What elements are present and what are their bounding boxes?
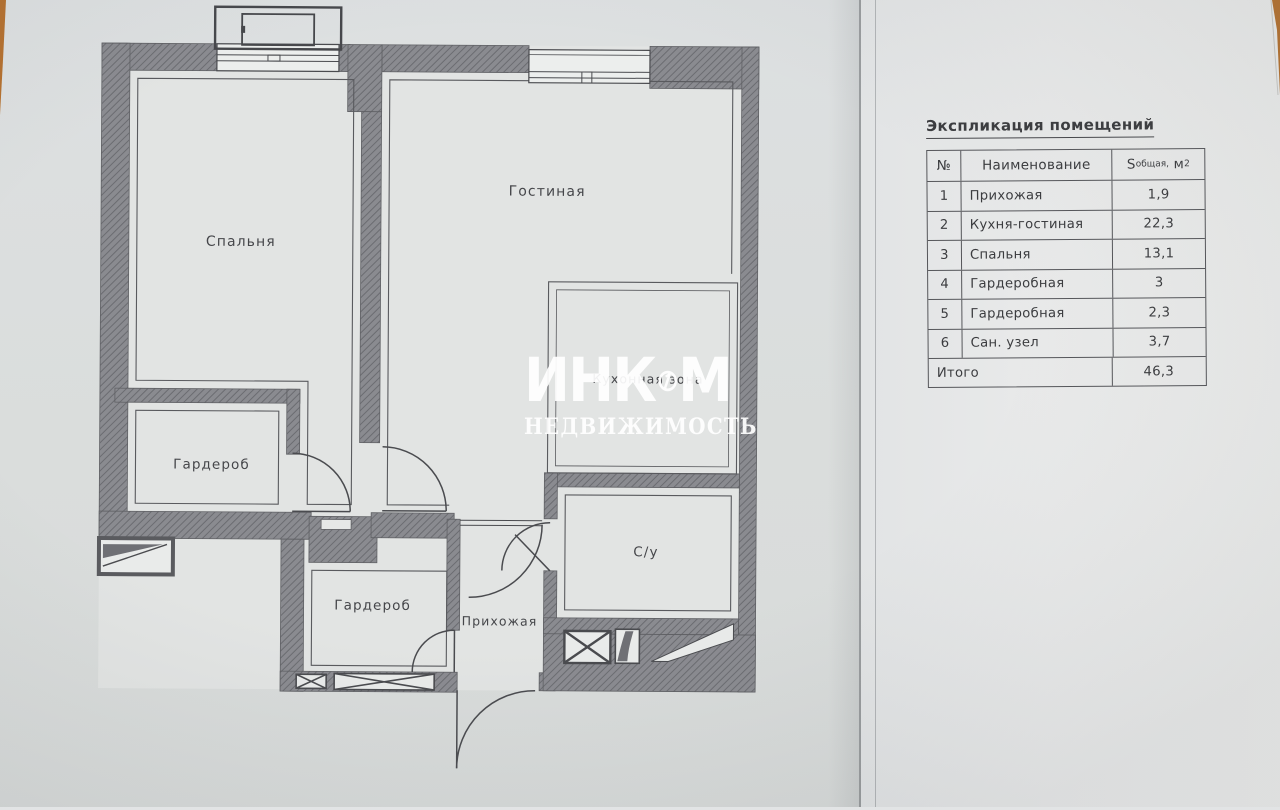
wood-table-edge-left bbox=[0, 0, 8, 115]
wood-table-edge-right bbox=[1266, 0, 1280, 95]
cell-area: 2,3 bbox=[1113, 298, 1205, 327]
cell-name: Спальня bbox=[962, 240, 1113, 270]
cell-area: 3 bbox=[1113, 269, 1205, 298]
wall-bottom-left-band bbox=[99, 511, 311, 539]
table-row: 1 Прихожая 1,9 bbox=[927, 179, 1204, 210]
floor-plan: Спальня Гостиная Кухонная зона Гардероб … bbox=[0, 0, 882, 810]
cell-number: 2 bbox=[928, 211, 962, 240]
wall-hallway-left bbox=[446, 519, 460, 630]
header-number: № bbox=[927, 151, 961, 181]
cell-area: 3,7 bbox=[1113, 328, 1205, 357]
table-total-row: Итого 46,3 bbox=[929, 356, 1206, 387]
explication-table: № Наименование Sобщая, м2 1 Прихожая 1,9… bbox=[926, 148, 1207, 388]
duct-slot bbox=[321, 519, 351, 529]
cell-name: Кухня-гостиная bbox=[962, 210, 1113, 240]
header-name: Наименование bbox=[961, 150, 1112, 181]
wall-wardrobe1-top bbox=[115, 388, 300, 403]
explication-panel: Экспликация помещений № Наименование Sоб… bbox=[926, 114, 1208, 388]
shaft-box-bathroom bbox=[564, 631, 610, 663]
shaft-box-small bbox=[296, 674, 326, 688]
cell-number: 3 bbox=[928, 241, 962, 270]
cell-name: Прихожая bbox=[961, 181, 1112, 211]
header-area-sup: 2 bbox=[1184, 159, 1190, 169]
cell-area: 13,1 bbox=[1113, 239, 1205, 268]
room-label-kitchen-zone: Кухонная зона bbox=[592, 371, 703, 387]
room-label-bedroom: Спальня bbox=[206, 234, 276, 250]
wall-wardrobe2-left bbox=[280, 539, 304, 691]
wall-right bbox=[738, 47, 759, 692]
photo-of-floor-plan-document: Спальня Гостиная Кухонная зона Гардероб … bbox=[0, 0, 1280, 807]
shaft-box-wide bbox=[334, 673, 434, 690]
shaft-duct-curved bbox=[615, 629, 639, 663]
table-header-row: № Наименование Sобщая, м2 bbox=[927, 149, 1204, 181]
balcony bbox=[215, 7, 341, 50]
header-area: Sобщая, м2 bbox=[1112, 149, 1204, 180]
table-row: 4 Гардеробная 3 bbox=[928, 268, 1205, 299]
header-area-unit: м bbox=[1169, 156, 1184, 172]
wall-top-living bbox=[382, 45, 529, 73]
room-label-wardrobe-1: Гардероб bbox=[173, 456, 250, 472]
header-area-s: S bbox=[1127, 157, 1136, 173]
explication-title: Экспликация помещений bbox=[926, 115, 1155, 139]
cell-name: Гардеробная bbox=[962, 269, 1113, 299]
living-window bbox=[529, 50, 650, 84]
table-row: 6 Сан. узел 3,7 bbox=[928, 327, 1205, 358]
room-label-hallway: Прихожая bbox=[462, 613, 538, 628]
paper-fold-line bbox=[875, 0, 876, 807]
cell-name: Сан. узел bbox=[962, 328, 1113, 358]
wall-mid-band bbox=[371, 513, 454, 539]
paper-fold-shadow bbox=[828, 0, 861, 807]
cell-area: 1,9 bbox=[1112, 180, 1204, 209]
wall-left bbox=[99, 43, 130, 538]
wall-bathroom-top bbox=[557, 473, 739, 488]
total-value: 46,3 bbox=[1113, 357, 1205, 386]
wall-partition-bedroom-living bbox=[360, 112, 382, 443]
cell-number: 5 bbox=[928, 300, 962, 329]
balcony-door-mark bbox=[241, 26, 245, 33]
cell-area: 22,3 bbox=[1113, 210, 1205, 239]
table-row: 3 Спальня 13,1 bbox=[928, 238, 1205, 269]
shaft-left-exterior bbox=[99, 538, 173, 574]
room-label-living: Гостиная bbox=[509, 184, 586, 200]
room-label-wardrobe-2: Гардероб bbox=[334, 597, 411, 613]
cell-name: Гардеробная bbox=[962, 299, 1113, 329]
cell-number: 4 bbox=[928, 270, 962, 299]
paper-fold-line bbox=[859, 0, 861, 807]
door-entrance bbox=[457, 690, 535, 768]
wall-wardrobe1-right bbox=[287, 389, 300, 454]
wall-partition-head bbox=[348, 45, 382, 112]
header-area-sub: общая, bbox=[1136, 159, 1169, 169]
cell-number: 1 bbox=[927, 182, 961, 211]
table-row: 5 Гардеробная 2,3 bbox=[928, 297, 1205, 328]
apartment-floor bbox=[98, 43, 759, 692]
cell-number: 6 bbox=[928, 329, 962, 358]
wall-bathroom-left-upper bbox=[544, 473, 557, 519]
table-row: 2 Кухня-гостиная 22,3 bbox=[928, 209, 1205, 240]
total-label: Итого bbox=[929, 358, 1113, 387]
room-label-bathroom: С/у bbox=[633, 544, 658, 560]
